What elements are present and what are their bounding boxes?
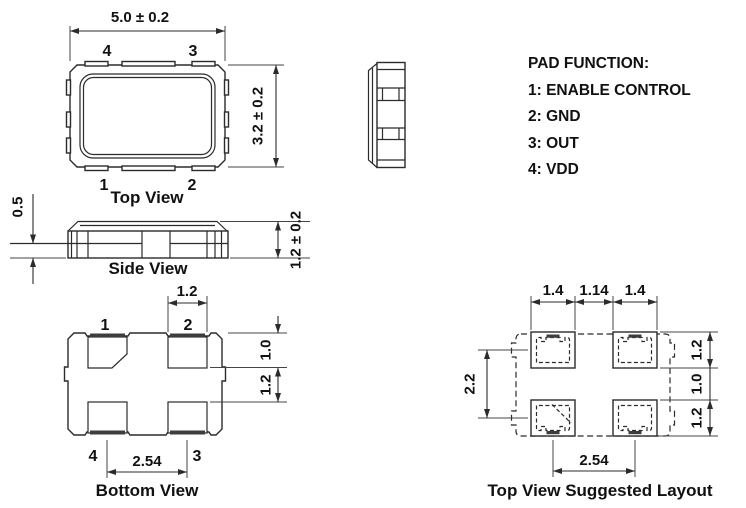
layout-pad-height-bottom-dim: 1.2 (689, 408, 706, 429)
pad-edge-metal (90, 334, 125, 338)
castellation-tab (192, 62, 215, 67)
end-view (369, 63, 406, 168)
pad-function-item-1: 1: ENABLE CONTROL (528, 82, 691, 99)
pad-edge-metal (547, 335, 560, 338)
side-view-body (68, 231, 228, 258)
layout-pitch-dim: 2.54 (579, 452, 609, 469)
pad-function-block: PAD FUNCTION: 1: ENABLE CONTROL 2: GND 3… (528, 55, 691, 178)
top-view-pad1-label: 1 (100, 177, 109, 194)
bottom-view-pitch-dim: 2.54 (132, 453, 162, 470)
side-view-lid (68, 222, 227, 232)
end-view-body (377, 63, 405, 168)
pad-edge-metal (90, 431, 125, 435)
pad-function-item-2: 2: GND (528, 108, 581, 125)
castellation-tab (225, 112, 229, 127)
bottom-view-pad1-label: 1 (101, 317, 110, 334)
bottom-view-pad-width-dim: 1.2 (177, 283, 198, 300)
castellation-tab (225, 80, 229, 95)
layout-row-gap-dim: 1.0 (689, 374, 706, 395)
top-view-height-dim: 3.2 ± 0.2 (250, 87, 267, 145)
side-view: 0.5 1.2 ± 0.2 Side View (10, 194, 311, 284)
pad-function-title: PAD FUNCTION: (528, 55, 649, 72)
layout-pad-width-left-dim: 1.4 (543, 282, 565, 299)
bottom-view-caption: Bottom View (96, 481, 199, 500)
top-view-lid-outline (80, 74, 215, 158)
pad-edge-metal (629, 431, 642, 434)
side-view-base-dim: 0.5 (10, 197, 27, 218)
layout-pad-gap-dim: 1.14 (579, 282, 609, 299)
layout-pad-height-top-dim: 1.2 (689, 340, 706, 361)
castellation-tab (67, 112, 71, 127)
pad-function-item-3: 3: OUT (528, 135, 579, 152)
castellation-tab (67, 80, 71, 95)
layout-pad-width-right-dim: 1.4 (625, 282, 647, 299)
top-view: 5.0 ± 0.2 4 3 3.2 ± 0.2 1 2 Top View (67, 9, 285, 207)
top-view-lid-inner (84, 78, 212, 155)
layout-caption: Top View Suggested Layout (487, 481, 712, 500)
castellation-tab (192, 166, 215, 171)
top-view-pad3-label: 3 (189, 43, 198, 60)
bottom-view: 1 2 4 3 1.2 1.0 1.2 2.54 Bottom View (65, 283, 288, 500)
layout-row-pitch-dim: 2.2 (462, 374, 479, 395)
castellation-tab (85, 166, 108, 171)
layout-view: 1.4 1.14 1.4 2.2 1.2 1.0 1.2 2.54 Top Vi… (462, 282, 719, 500)
bottom-pad-4 (88, 402, 127, 433)
bottom-view-pad-height-dim: 1.2 (258, 375, 275, 396)
pad-edge-metal (170, 431, 205, 435)
top-view-pad2-label: 2 (188, 177, 197, 194)
mechanical-drawing-page: 5.0 ± 0.2 4 3 3.2 ± 0.2 1 2 Top View (0, 0, 746, 508)
bottom-pad-1 (88, 337, 127, 368)
side-view-caption: Side View (108, 259, 188, 278)
top-view-pad4-label: 4 (103, 43, 112, 60)
pad-edge-metal (629, 335, 642, 338)
pad-edge-metal (547, 431, 560, 434)
castellation-tab (225, 138, 229, 153)
bottom-view-pad-offset-dim: 1.0 (258, 340, 275, 361)
bottom-view-pad3-label: 3 (193, 448, 202, 465)
castellation-tab (122, 62, 175, 67)
top-view-body (70, 65, 225, 167)
castellation-tab (85, 62, 108, 67)
bottom-view-pad4-label: 4 (89, 448, 98, 465)
castellation-tab (122, 166, 175, 171)
bottom-view-pad2-label: 2 (184, 317, 193, 334)
pad-edge-metal (170, 334, 205, 338)
bottom-pad-2 (168, 337, 207, 368)
top-view-width-dim: 5.0 ± 0.2 (111, 9, 169, 26)
castellation-tab (67, 138, 71, 153)
top-view-caption: Top View (110, 188, 184, 207)
pad-function-item-4: 4: VDD (528, 161, 579, 178)
drawing-canvas: 5.0 ± 0.2 4 3 3.2 ± 0.2 1 2 Top View (0, 0, 746, 508)
side-view-height-dim: 1.2 ± 0.2 (288, 211, 305, 269)
bottom-pad-3 (168, 402, 207, 433)
